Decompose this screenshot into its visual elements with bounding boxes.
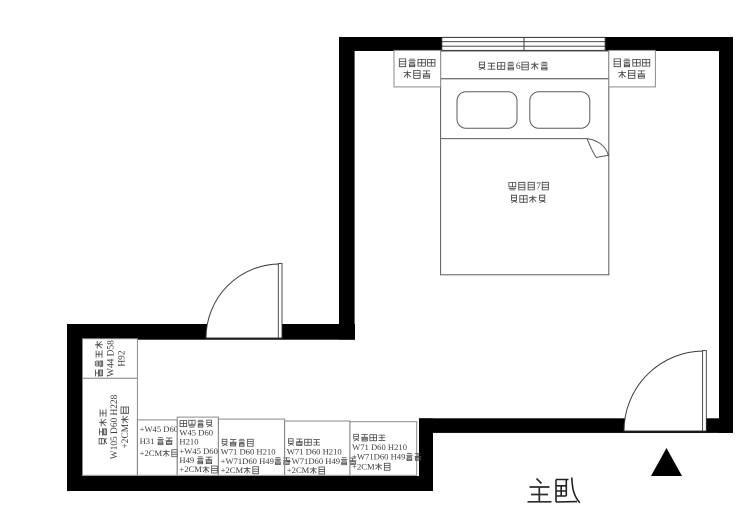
svg-text:W105 D60 H228: W105 D60 H228 <box>110 394 120 459</box>
svg-text:+2CM: +2CM <box>121 423 131 448</box>
svg-text:+2CM: +2CM <box>179 464 202 474</box>
svg-text:+2CM: +2CM <box>287 465 310 475</box>
svg-text:+W45 D60: +W45 D60 <box>140 424 179 434</box>
svg-text:W44 D58: W44 D58 <box>106 340 116 377</box>
svg-text:+2CM: +2CM <box>221 465 244 475</box>
svg-text:+2CM: +2CM <box>140 448 163 458</box>
svg-text:H31: H31 <box>140 436 155 446</box>
svg-text:+2CM: +2CM <box>352 461 375 471</box>
svg-text:W71 D60 H210: W71 D60 H210 <box>287 446 342 456</box>
svg-text:W71 D60 H210: W71 D60 H210 <box>352 442 407 452</box>
svg-text:7: 7 <box>536 182 541 192</box>
svg-text:6: 6 <box>516 61 521 72</box>
svg-text:H92: H92 <box>117 350 127 366</box>
svg-text:+W71D60 H49: +W71D60 H49 <box>352 452 405 462</box>
